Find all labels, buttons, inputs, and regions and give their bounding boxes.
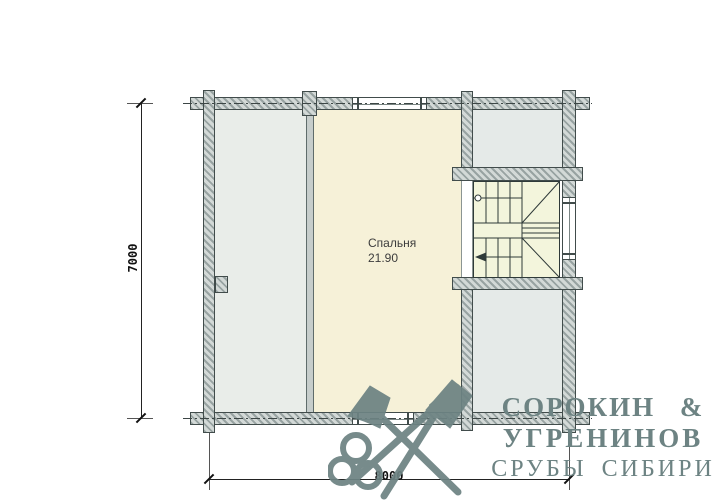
partition-wall [306, 110, 314, 412]
wall-stair-upper [452, 167, 583, 181]
company-logo-text: СОРОКИН & УГРЕНИНОВ СРУБЫ СИБИРИ [486, 392, 720, 484]
logo-line-1: СОРОКИН & [486, 392, 720, 422]
stairs-drawing [473, 181, 560, 278]
floor-plan-sheet: 7000 8000 Спальня 21.90 [0, 0, 728, 502]
bedroom-area: 21.90 [368, 251, 416, 266]
crossed-axes-key-icon [328, 376, 488, 502]
window-frame-tick [563, 253, 575, 255]
logo-line-2: УГРЕНИНОВ [486, 422, 720, 454]
logo-line-3: СРУБЫ СИБИРИ [486, 454, 720, 484]
window-right [562, 197, 576, 260]
stair-opening [461, 181, 473, 277]
log-end-left-wall-mid [215, 276, 228, 293]
vertical-dimension-label: 7000 [126, 244, 140, 273]
dimension-line-vertical [141, 103, 142, 418]
dimension-extension [209, 433, 210, 490]
bedroom-label: Спальня 21.90 [368, 236, 416, 266]
wall-right [562, 90, 576, 433]
bedroom-name: Спальня [368, 236, 416, 251]
room-left [215, 110, 307, 412]
wall-left [203, 90, 215, 433]
window-glass-line [569, 198, 570, 259]
window-frame-tick [563, 202, 575, 204]
wall-stair-lower [452, 277, 583, 290]
room-top-right [473, 110, 562, 167]
axis-line-top [183, 103, 592, 104]
